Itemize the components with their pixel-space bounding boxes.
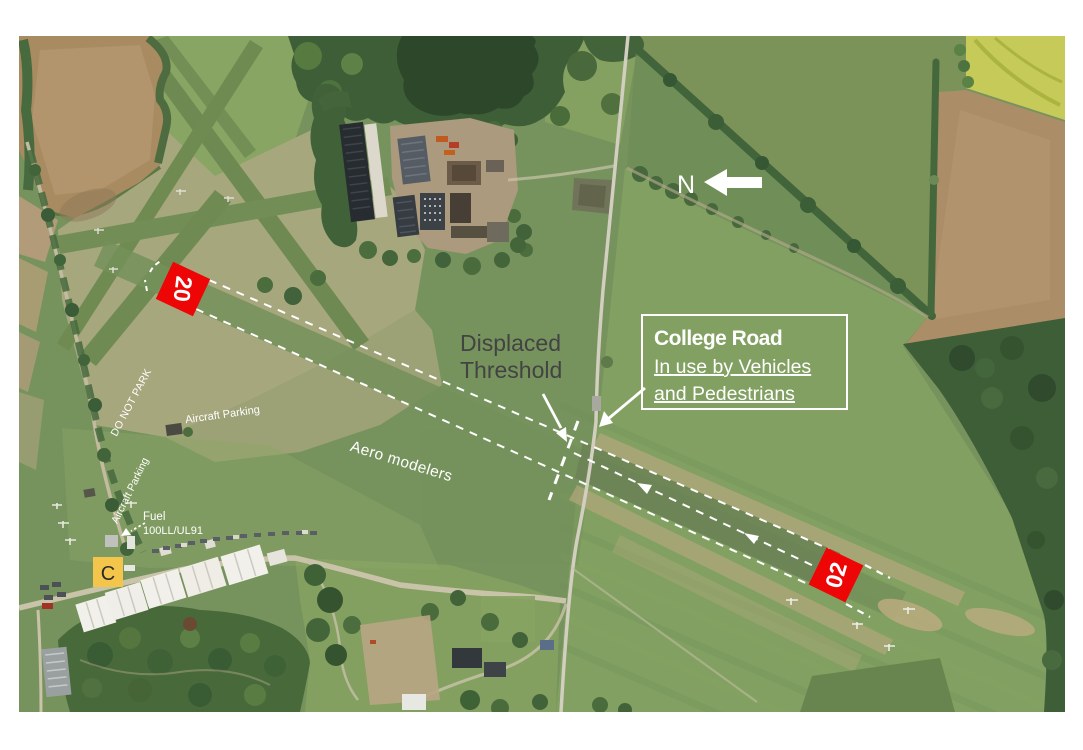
svg-text:Displaced: Displaced bbox=[460, 330, 561, 356]
svg-text:C: C bbox=[101, 563, 115, 585]
svg-text:100LL/UL91: 100LL/UL91 bbox=[143, 525, 203, 537]
svg-text:N: N bbox=[677, 171, 695, 199]
svg-text:Threshold: Threshold bbox=[460, 357, 562, 383]
svg-text:20: 20 bbox=[169, 275, 198, 304]
svg-text:Fuel: Fuel bbox=[143, 511, 165, 523]
svg-text:and Pedestrians: and Pedestrians bbox=[654, 383, 795, 405]
svg-text:In use by Vehicles: In use by Vehicles bbox=[654, 356, 811, 378]
svg-text:College Road: College Road bbox=[654, 327, 782, 350]
